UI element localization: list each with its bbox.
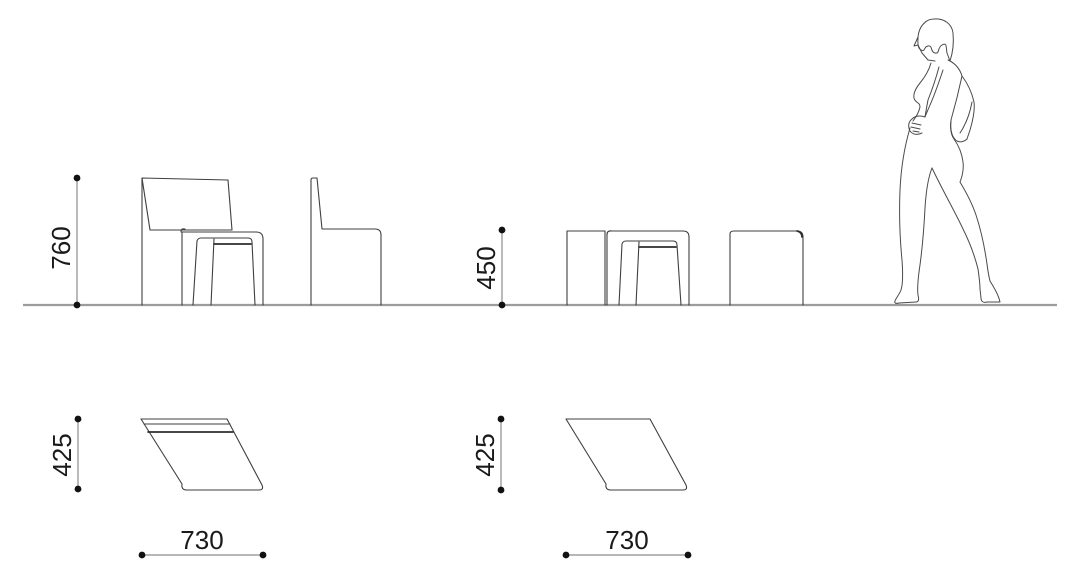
nested-stool-outline	[619, 241, 681, 305]
dimension-dot	[74, 302, 81, 309]
dimension-dot	[139, 552, 146, 559]
stool-height-label: 450	[471, 246, 501, 289]
nested-stool-leg-edge	[636, 242, 639, 305]
chair-front-elevation	[142, 178, 263, 305]
chair-plan-width-label: 730	[180, 525, 223, 555]
chair-profile	[311, 178, 381, 305]
dimension-chair-height: 760	[46, 175, 80, 309]
stool-side-elevation	[730, 231, 803, 305]
figure-fingers	[911, 123, 921, 132]
stool-side-panel	[567, 231, 605, 305]
dimension-dot	[685, 552, 692, 559]
dimension-dot	[74, 175, 81, 182]
dimension-dot	[499, 302, 506, 309]
chair-plan-depth-label: 425	[47, 433, 77, 476]
figure-far-arm-outer	[962, 76, 974, 139]
dimension-dot	[75, 416, 82, 423]
dimension-stool-height: 450	[471, 227, 505, 309]
technical-drawing-canvas: 760 450	[0, 0, 1080, 585]
nested-stool-outline	[193, 238, 255, 305]
dimension-dot	[75, 486, 82, 493]
dimension-dot	[498, 487, 505, 494]
dimension-dot	[563, 552, 570, 559]
figure-near-arm-inner	[925, 67, 939, 117]
human-figure	[895, 19, 1000, 304]
stool-plan-outline	[566, 419, 687, 490]
furniture-dimension-drawing: 760 450	[0, 0, 1080, 585]
stool-profile	[730, 231, 803, 305]
figure-left-leg	[895, 128, 932, 303]
stool-plan-width-label: 730	[605, 525, 648, 555]
chair-side-elevation	[311, 178, 381, 305]
chair-height-label: 760	[46, 226, 76, 269]
figure-right-leg-front	[932, 168, 1000, 302]
figure-torso-front	[913, 63, 931, 121]
nested-stool-leg-edge	[211, 239, 214, 305]
dimension-dot	[499, 227, 506, 234]
plan-view-stool: 425 730	[470, 416, 691, 559]
stool-plan-depth-label: 425	[470, 433, 500, 476]
dimension-dot	[498, 416, 505, 423]
figure-near-arm	[925, 70, 943, 117]
stool-front-elevation	[567, 231, 689, 305]
figure-back	[948, 60, 962, 139]
figure-right-leg-back	[954, 139, 990, 281]
dimension-dot	[260, 552, 267, 559]
plan-view-chair: 425 730	[47, 416, 266, 559]
chair-plan-outline	[141, 419, 263, 490]
chair-backrest	[142, 178, 232, 230]
